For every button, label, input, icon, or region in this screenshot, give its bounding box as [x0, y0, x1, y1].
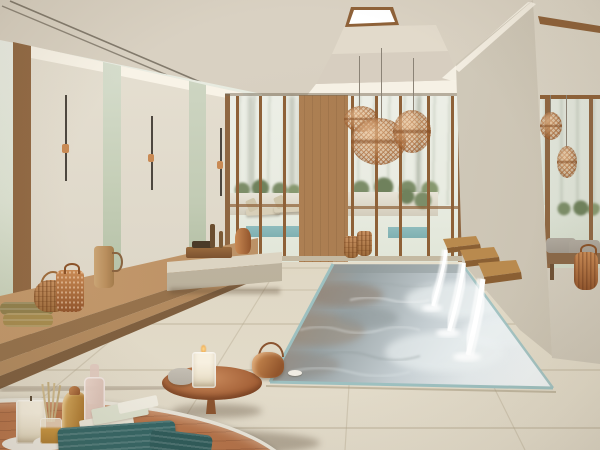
splash — [453, 353, 481, 362]
tiny-dish — [288, 370, 302, 376]
lit-candle — [192, 352, 216, 388]
stacked-stones — [168, 368, 195, 385]
splash — [422, 305, 442, 312]
waterfalls — [422, 250, 483, 362]
amber-bottle-cap — [69, 386, 80, 395]
candle-wick — [30, 396, 32, 401]
copper-pot — [252, 352, 284, 378]
spa-interior-scene — [0, 0, 600, 450]
splash — [436, 329, 460, 337]
